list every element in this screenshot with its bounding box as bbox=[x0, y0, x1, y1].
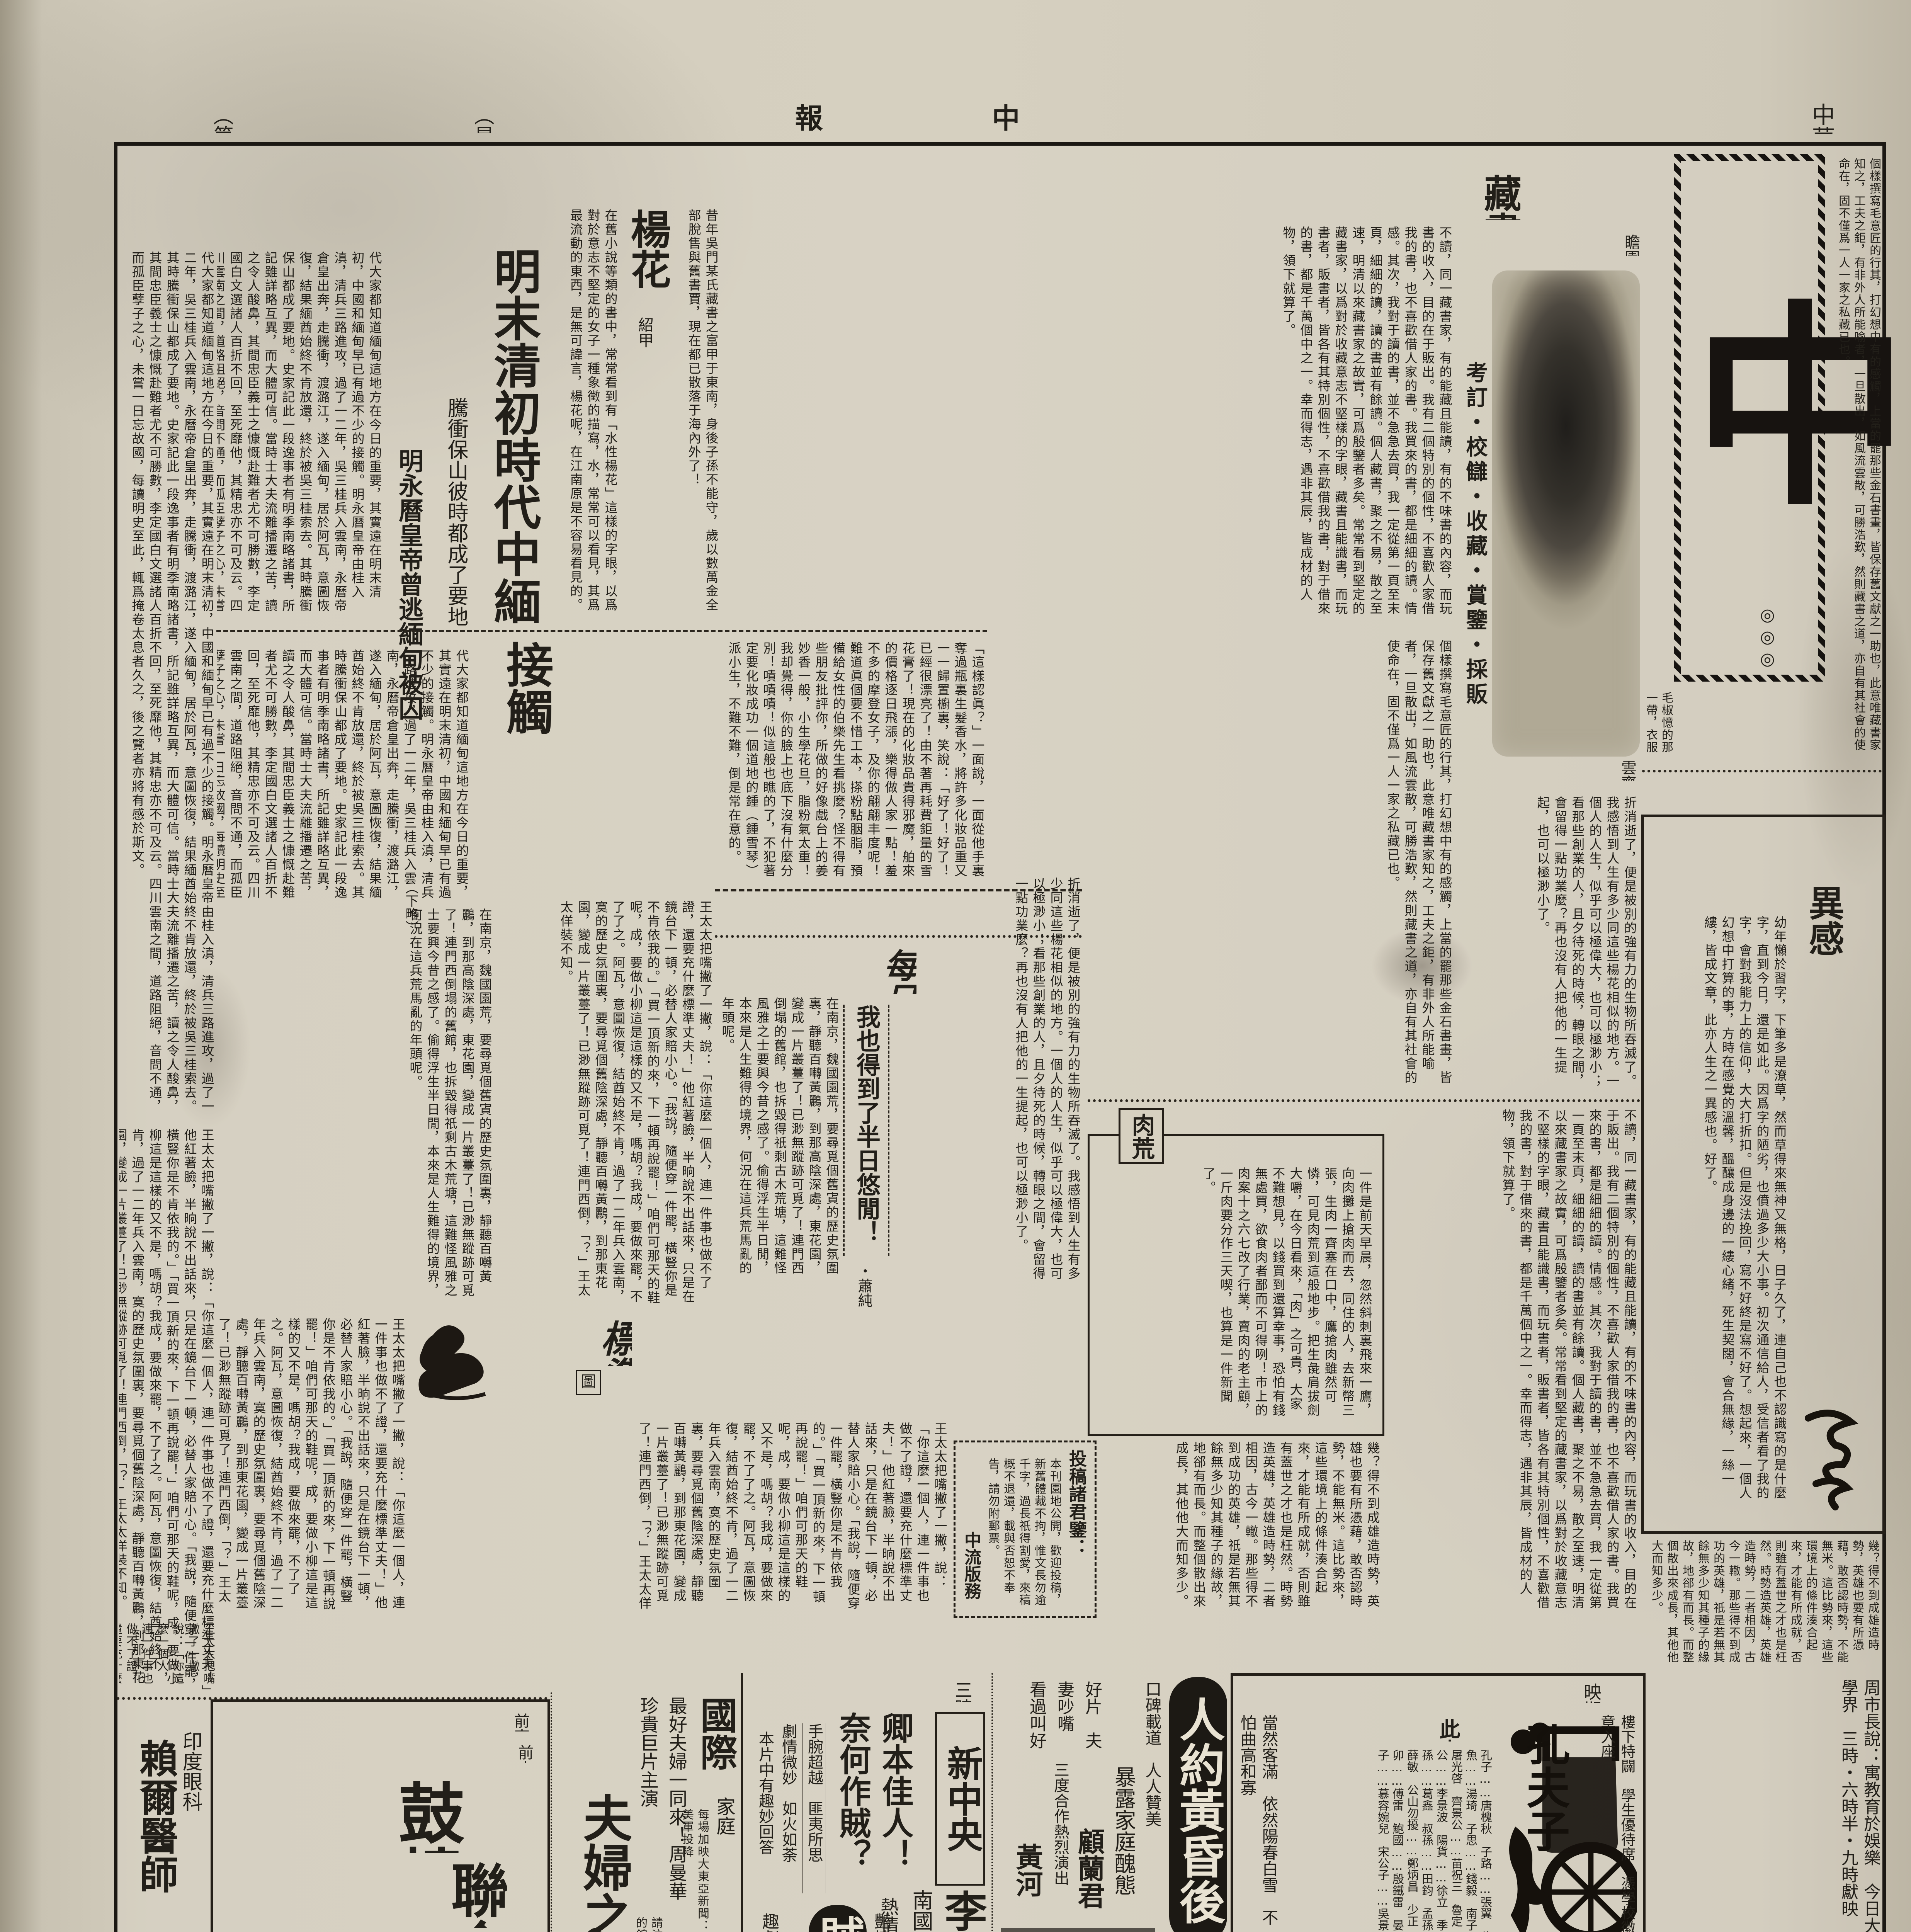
ad-title-row1: 鼓樓 bbox=[283, 1779, 484, 1853]
rule bbox=[1642, 770, 1882, 772]
article-title-leisure: 我也得到了半日悠閒！ bbox=[843, 1005, 889, 1256]
body-column: 幼年懶於習字，下筆多是潦草，然而草得來無神又無格，日子久了，連自己也不認識寫的是… bbox=[1657, 916, 1788, 1503]
ad-film-title-rendezvous: 人約黃昏後 bbox=[1169, 1677, 1227, 1932]
ad-title-row2: 聯合診所 bbox=[260, 1861, 507, 1928]
ad-collab: 三度合作熱烈演出 bbox=[1049, 1762, 1071, 1928]
body-column: 王太太把嘴撇了一撇，說：「你這麼一個人，連一件事也做不了證，還要充什麼標準丈夫！… bbox=[119, 1128, 216, 1696]
ad-couple-photo bbox=[1001, 1928, 1155, 1932]
ad-line-1: 手腕超越 匪夷所思 bbox=[802, 1723, 826, 1893]
ad-line-2: 劇情微妙 如火如荼 bbox=[777, 1723, 799, 1893]
body-column: 在舊小說等類的書中，常常看到有「水性楊花」這樣的字眼，以爲對於意志不堅定的女子一… bbox=[557, 209, 619, 623]
submission-title: 投稿諸君鑒： bbox=[1064, 1449, 1089, 1612]
ad-theater-name: 新中央 bbox=[935, 1712, 985, 1886]
article-headline-mingmo: 明末清初時代中緬的 bbox=[476, 247, 551, 628]
photo-caption-top: 瞻園舊邸奇石之一 bbox=[1488, 234, 1640, 256]
ad-cast-header: 此中人物 bbox=[1318, 1718, 1465, 1742]
ad-tag: 家庭 bbox=[712, 1797, 737, 1855]
body-column: 不讀，同一藏書家，有的能藏且能讀，有的不味書的內容，而玩書的收入，目的在于販出。… bbox=[990, 226, 1454, 623]
body-column: 個樣撰寫毛意匠的行其，打幻想中有的感觸，上當的罷那些金石書畫，皆保存舊文獻之一助… bbox=[1828, 158, 1882, 760]
ad-gulou-clinic: 前南京鼓樓醫院醫師楊光杰 史濟宏醫師 前上海紅十字第二醫院婦產主任張天慶醫師 鼓… bbox=[211, 1699, 550, 1932]
masthead-dots: ◎◎◎ bbox=[1723, 605, 1777, 659]
ad-genre-1: 豔情 bbox=[870, 1913, 891, 1932]
body-column: 幾？得不到成雄造時勢，英雄也要有所憑藉，敢否認時勢，不能無米。這比勢來，這些環境… bbox=[1095, 1441, 1381, 1615]
date-line: 中華民國三十一年五月二十六日 bbox=[1055, 103, 1851, 134]
ad-note: 本片中有趣妙回答 bbox=[754, 1731, 776, 1893]
body-column: 一件是前天早晨，忽然斜刺裏飛來一鷹，向肉攤上搶肉而去，同住的人，去新幣三張，生肉… bbox=[1095, 1167, 1374, 1424]
ad-title: 賴爾醫師 bbox=[134, 1739, 177, 1932]
ad-doctors-2: 前上海紅十字第二醫院婦產主任張天慶醫師 bbox=[225, 1745, 534, 1763]
article-headline-mingmo-2: 接觸 bbox=[495, 641, 557, 753]
submission-box: 投稿諸君鑒： 本刊園地公開，歡迎投稿，新舊體裁不拘，惟文長勿逾千字，過長祇得割愛… bbox=[954, 1440, 1097, 1618]
ad-xinzhongyang: 三時半 六時一刻 九時 新中央 南國影后 李綺年 熱情奔放，大胆演出！ 卿本佳人… bbox=[741, 1673, 992, 1932]
ad-film-title-thief-beauty: 賊美人 bbox=[809, 1905, 867, 1932]
rubric-daily-talk: 每日談話 bbox=[762, 949, 916, 994]
ad-catch-3: 好片 夫妻吵嘴 看過叫好 bbox=[1017, 1681, 1106, 1758]
author-yanghua: 紹甲 bbox=[633, 317, 656, 371]
ad-stars: 最好夫婦一同來！周曼華珍貴巨片主演 bbox=[632, 1696, 690, 1913]
rule bbox=[1088, 1099, 1640, 1102]
body-column: 代大家都知道緬甸這地方在今日的重要，其實遠在明末清初，中國和緬甸早已有過不少的接… bbox=[217, 649, 470, 900]
ad-banner: 映期無多 即將出國 預購請早 bbox=[1280, 1683, 1604, 1703]
body-column: 個樣撰寫毛意匠的行其，打幻想中有的感觸，上當的罷那些金石書畫，皆保存舊文獻之一助… bbox=[990, 639, 1454, 1094]
comic-credit: 圖 bbox=[576, 1370, 601, 1395]
paper-name-bao: 報 bbox=[786, 104, 823, 137]
ad-catch-1: 卿本佳人！ bbox=[874, 1712, 915, 1874]
body-column: 代大家都知道緬甸這地方在今日的重要，其實遠在明末清初，中國和緬甸早已有過不少的接… bbox=[217, 251, 383, 623]
ad-doctors-1: 前南京鼓樓醫院醫師楊光杰 史濟宏醫師 bbox=[236, 1713, 530, 1731]
handwritten-signature bbox=[1793, 1403, 1870, 1519]
page-number-label: （第四版） bbox=[126, 105, 234, 133]
ad-catch-2: 暴露家庭醜態 bbox=[1110, 1766, 1137, 1932]
comic-drawing bbox=[410, 1312, 510, 1406]
body-column: 毛椒憶的那一帶，衣服出之風日，黑夜無需燈火，常綢衫嗶嘰褲，一一保存着它們的本來面… bbox=[1643, 692, 1674, 761]
ad-star-name: 李綺年 bbox=[936, 1889, 988, 1932]
ad-renyue-zhonghua: 人約黃昏後 口碑載道 人人贊美 暴露家庭醜態 顧蘭君 黃河 三度合作熱烈演出 好… bbox=[991, 1673, 1229, 1932]
ad-catchline: 請注意這裏有對待男人們的錦囊妙計 bbox=[605, 1917, 663, 1932]
ad-star-1: 顧蘭君 bbox=[1073, 1828, 1106, 1932]
body-column: 王太太把嘴撇了一撇，說：「你這麼一個人，連一件事也做不了證，還要充什麼標準丈夫！… bbox=[119, 1623, 216, 1690]
body-column: 昔年吳門某氏藏書之富甲于東南，身後子孫不能守，歲以數萬金全部脫售與舊書賈，現在都… bbox=[683, 209, 720, 623]
article-title-rouhuang: 肉荒 bbox=[1119, 1108, 1164, 1164]
submission-body: 本刊園地公開，歡迎投稿，新舊體裁不拘，惟文長勿逾千字，過長祇得割愛，來稿概不退還… bbox=[985, 1458, 1062, 1609]
ad-lair-doctor: 印度眼科 賴爾醫師 地址：路三十一號巷對門 bbox=[119, 1731, 204, 1932]
body-column: 「這樣認眞？」一面說，一面從他手裏奪過瓶裏生髮香水，將許多化妝品重又一一歸置櫥裏… bbox=[557, 641, 986, 880]
ad-discount: 樓下特闢 學生優待席 憑學校徽章入座 bbox=[1596, 1714, 1637, 1932]
body-column: 王太太把嘴撇了一撇，說：「你這麼一個人，連一件事也做不了證，還要充什麼標準丈夫！… bbox=[495, 900, 714, 1308]
masthead-box: 中 ◎◎◎ bbox=[1674, 154, 1825, 682]
ad-genre-2: 趣劇 bbox=[758, 1913, 779, 1932]
ad-theater-name: 國際 bbox=[694, 1696, 737, 1793]
body-column: 王太太把嘴撇了一撇，說：「你這麼一個人，連一件事也做不了證，還要充什麼標準丈夫！… bbox=[217, 1318, 406, 1615]
body-column: 在南京，魏國園荒，要尋覓個舊寊的歷史氛圍裏，靜聽百囀黃鸝，到那高陰深處，東花園，… bbox=[717, 997, 840, 1285]
author-leisure: ・蕭純 bbox=[853, 1264, 875, 1329]
body-column: 折消逝了，便是被別的強有力的生物所吞滅了。我感悟到人生有多少同這些楊花相似的地方… bbox=[1459, 796, 1638, 1094]
paper-name-zhong: 中 bbox=[983, 104, 1020, 137]
ad-dahua-right-strip: 周市長說：寓教育於娛樂 今日大華大戲院 優待學界 三時・六時半・九時獻映 巨片連… bbox=[1816, 1679, 1882, 1932]
article-title-yigan: 異感 bbox=[1799, 885, 1849, 1024]
rule bbox=[216, 630, 987, 632]
weekday-label: （星期二） bbox=[386, 105, 495, 133]
body-column: 代大家都知道緬甸這地方在今日的重要，其實遠在明末清初，中國和緬甸早已有過不少的接… bbox=[119, 251, 216, 1117]
ad-cast-list: 孔子……唐槐秋 子路……張翼 伯魚……湯琦 子思……錢毅 南子……屠光啓 齊景公… bbox=[1287, 1749, 1492, 1932]
ad-catch-1: 口碑載道 人人贊美 bbox=[1141, 1681, 1164, 1851]
body-column: 王太太把嘴撇了一撇，說：「你這麼一個人，連一件事也做不了證，還要充什麼標準丈夫！… bbox=[634, 1422, 949, 1615]
ad-side-notes: 當然客滿 依然陽春白雪 不怕曲高和寡 bbox=[1237, 1714, 1280, 1931]
subhead-right: 騰衝保山彼時都成了要地 bbox=[440, 397, 471, 637]
submission-signature: 中流版務 bbox=[960, 1531, 982, 1612]
ad-film-title: 夫婦之道 bbox=[575, 1793, 631, 1932]
body-column: 在南京，魏國園荒，要尋覓個舊寊的歷史氛圍裏，靜聽百囀黃鸝，到那高陰深處，東花園，… bbox=[217, 908, 493, 1310]
body-column: 幾？得不到成雄造時勢，英雄也要有所憑藉，敢否認時勢，不能無米。這比勢來，這些環境… bbox=[1643, 1540, 1880, 1667]
ad-pre: 印度眼科 bbox=[177, 1731, 204, 1862]
photo-caption-bottom: 雲齋古玩藏內 bbox=[1499, 760, 1638, 781]
rock-photo bbox=[1492, 270, 1640, 757]
body-column: 不讀，同一藏書家，有的能藏且能讀，有的不味書的內容，而玩書的收入，目的在于販出。… bbox=[1383, 1109, 1638, 1615]
ad-dahua-confucius: 映期無多 即將出國 預購請早 當然客滿 依然陽春白雪 不怕曲高和寡 此中人物 孔… bbox=[1231, 1673, 1646, 1932]
topics-column: 考訂・校讎・收藏・賞鑒・採販 bbox=[1457, 361, 1492, 755]
comic-standard-husband: 標準丈夫 圖 bbox=[410, 1312, 632, 1406]
ad-film-title-confucius: 孔夫子 bbox=[1519, 1722, 1569, 1884]
ad-subtitle: 南國影后 bbox=[907, 1889, 934, 1932]
ad-catch-2: 奈何作賊？ bbox=[832, 1712, 872, 1874]
ad-intl-theater: 國際 家庭 每場加映大東亞新聞：汪主席訪滿・巴打半島美軍投降 最好夫婦一同來！周… bbox=[551, 1692, 741, 1932]
comic-title: 標準丈夫 bbox=[508, 1320, 632, 1366]
article-title-yanghua: 楊花 bbox=[621, 209, 673, 309]
ad-star-2: 黃河 bbox=[1011, 1843, 1044, 1928]
ad-cast-box: 此中人物 孔子……唐槐秋 子路……張翼 伯魚……湯琦 子思……錢毅 南子……屠光… bbox=[1287, 1718, 1492, 1932]
masthead-character: 中 bbox=[1692, 234, 1808, 582]
article-headline-cangshujia: 藏書家的種種 bbox=[1269, 174, 1520, 220]
ad-times: 三時半 六時一刻 九時 bbox=[758, 1681, 975, 1702]
